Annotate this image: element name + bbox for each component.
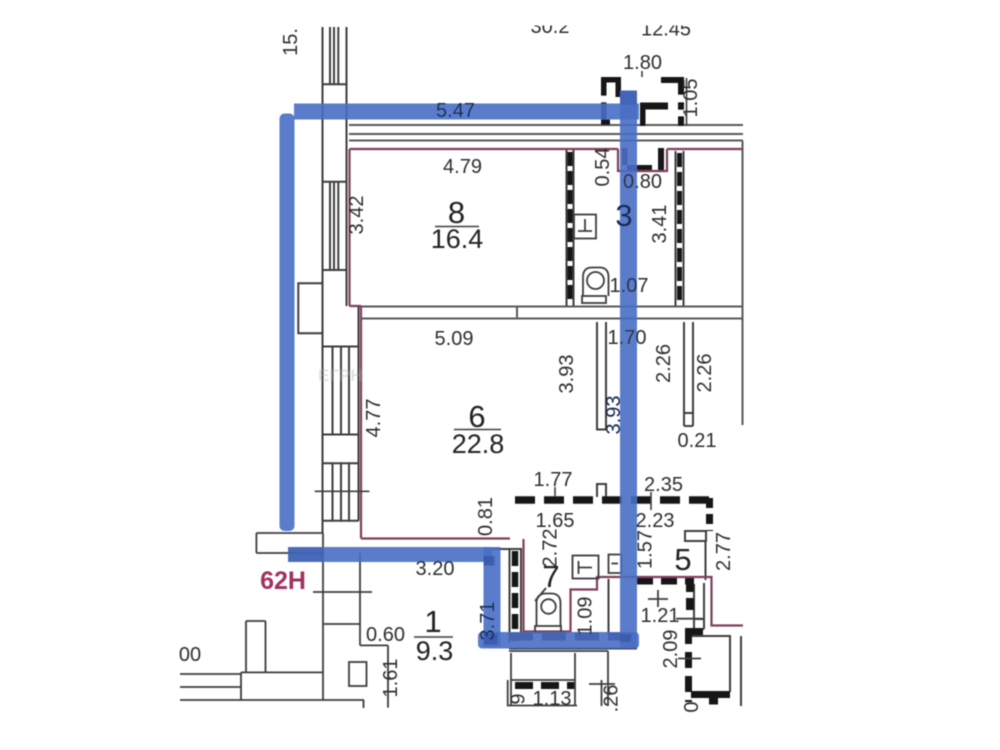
svg-text:5.09: 5.09 <box>435 328 474 350</box>
svg-text:7: 7 <box>542 559 559 594</box>
svg-text:2.35: 2.35 <box>644 474 683 496</box>
svg-text:0: 0 <box>681 701 703 712</box>
svg-text:22.8: 22.8 <box>452 429 505 459</box>
svg-text:1.57: 1.57 <box>635 530 657 569</box>
svg-text:1.80: 1.80 <box>623 52 662 74</box>
svg-text:1.09: 1.09 <box>575 597 597 636</box>
svg-text:ЕГРН: ЕГРН <box>318 366 363 385</box>
svg-text:1.70: 1.70 <box>608 327 647 349</box>
svg-text:00: 00 <box>179 644 201 666</box>
svg-text:1.05: 1.05 <box>680 79 702 118</box>
svg-text:1.61: 1.61 <box>380 659 402 698</box>
svg-text:1.07: 1.07 <box>610 275 649 297</box>
svg-text:1.13: 1.13 <box>533 688 572 710</box>
svg-text:0.80: 0.80 <box>623 171 662 193</box>
svg-text:2.26: 2.26 <box>694 354 716 393</box>
svg-text:16.4: 16.4 <box>431 224 484 254</box>
svg-text:3.93: 3.93 <box>603 396 625 435</box>
svg-text:5: 5 <box>674 542 691 577</box>
svg-text:3: 3 <box>615 198 632 233</box>
svg-text:1: 1 <box>424 604 441 639</box>
svg-text:2.23: 2.23 <box>636 510 675 532</box>
svg-text:9.3: 9.3 <box>416 636 454 666</box>
svg-text:1.77: 1.77 <box>534 469 573 491</box>
svg-text:3.71: 3.71 <box>477 602 499 641</box>
svg-text:9: 9 <box>508 693 530 704</box>
svg-text:4.79: 4.79 <box>443 156 482 178</box>
svg-text:.26: .26 <box>601 685 623 713</box>
svg-text:2.77: 2.77 <box>713 532 735 571</box>
svg-text:5.47: 5.47 <box>436 100 475 122</box>
svg-text:3.20: 3.20 <box>416 558 455 580</box>
svg-text:4.77: 4.77 <box>363 399 385 438</box>
svg-text:2.26: 2.26 <box>653 344 675 383</box>
svg-text:1.21: 1.21 <box>641 605 680 627</box>
svg-text:0.54: 0.54 <box>592 148 614 187</box>
svg-text:3.93: 3.93 <box>556 355 578 394</box>
svg-text:3.42: 3.42 <box>346 196 368 235</box>
svg-text:0.81: 0.81 <box>475 497 497 536</box>
svg-text:0.21: 0.21 <box>678 430 717 452</box>
svg-text:15.: 15. <box>280 28 302 56</box>
svg-text:3.41: 3.41 <box>649 205 671 244</box>
svg-text:62Н: 62Н <box>260 567 306 595</box>
svg-text:0.60: 0.60 <box>366 624 405 646</box>
svg-text:2.09: 2.09 <box>660 630 682 669</box>
